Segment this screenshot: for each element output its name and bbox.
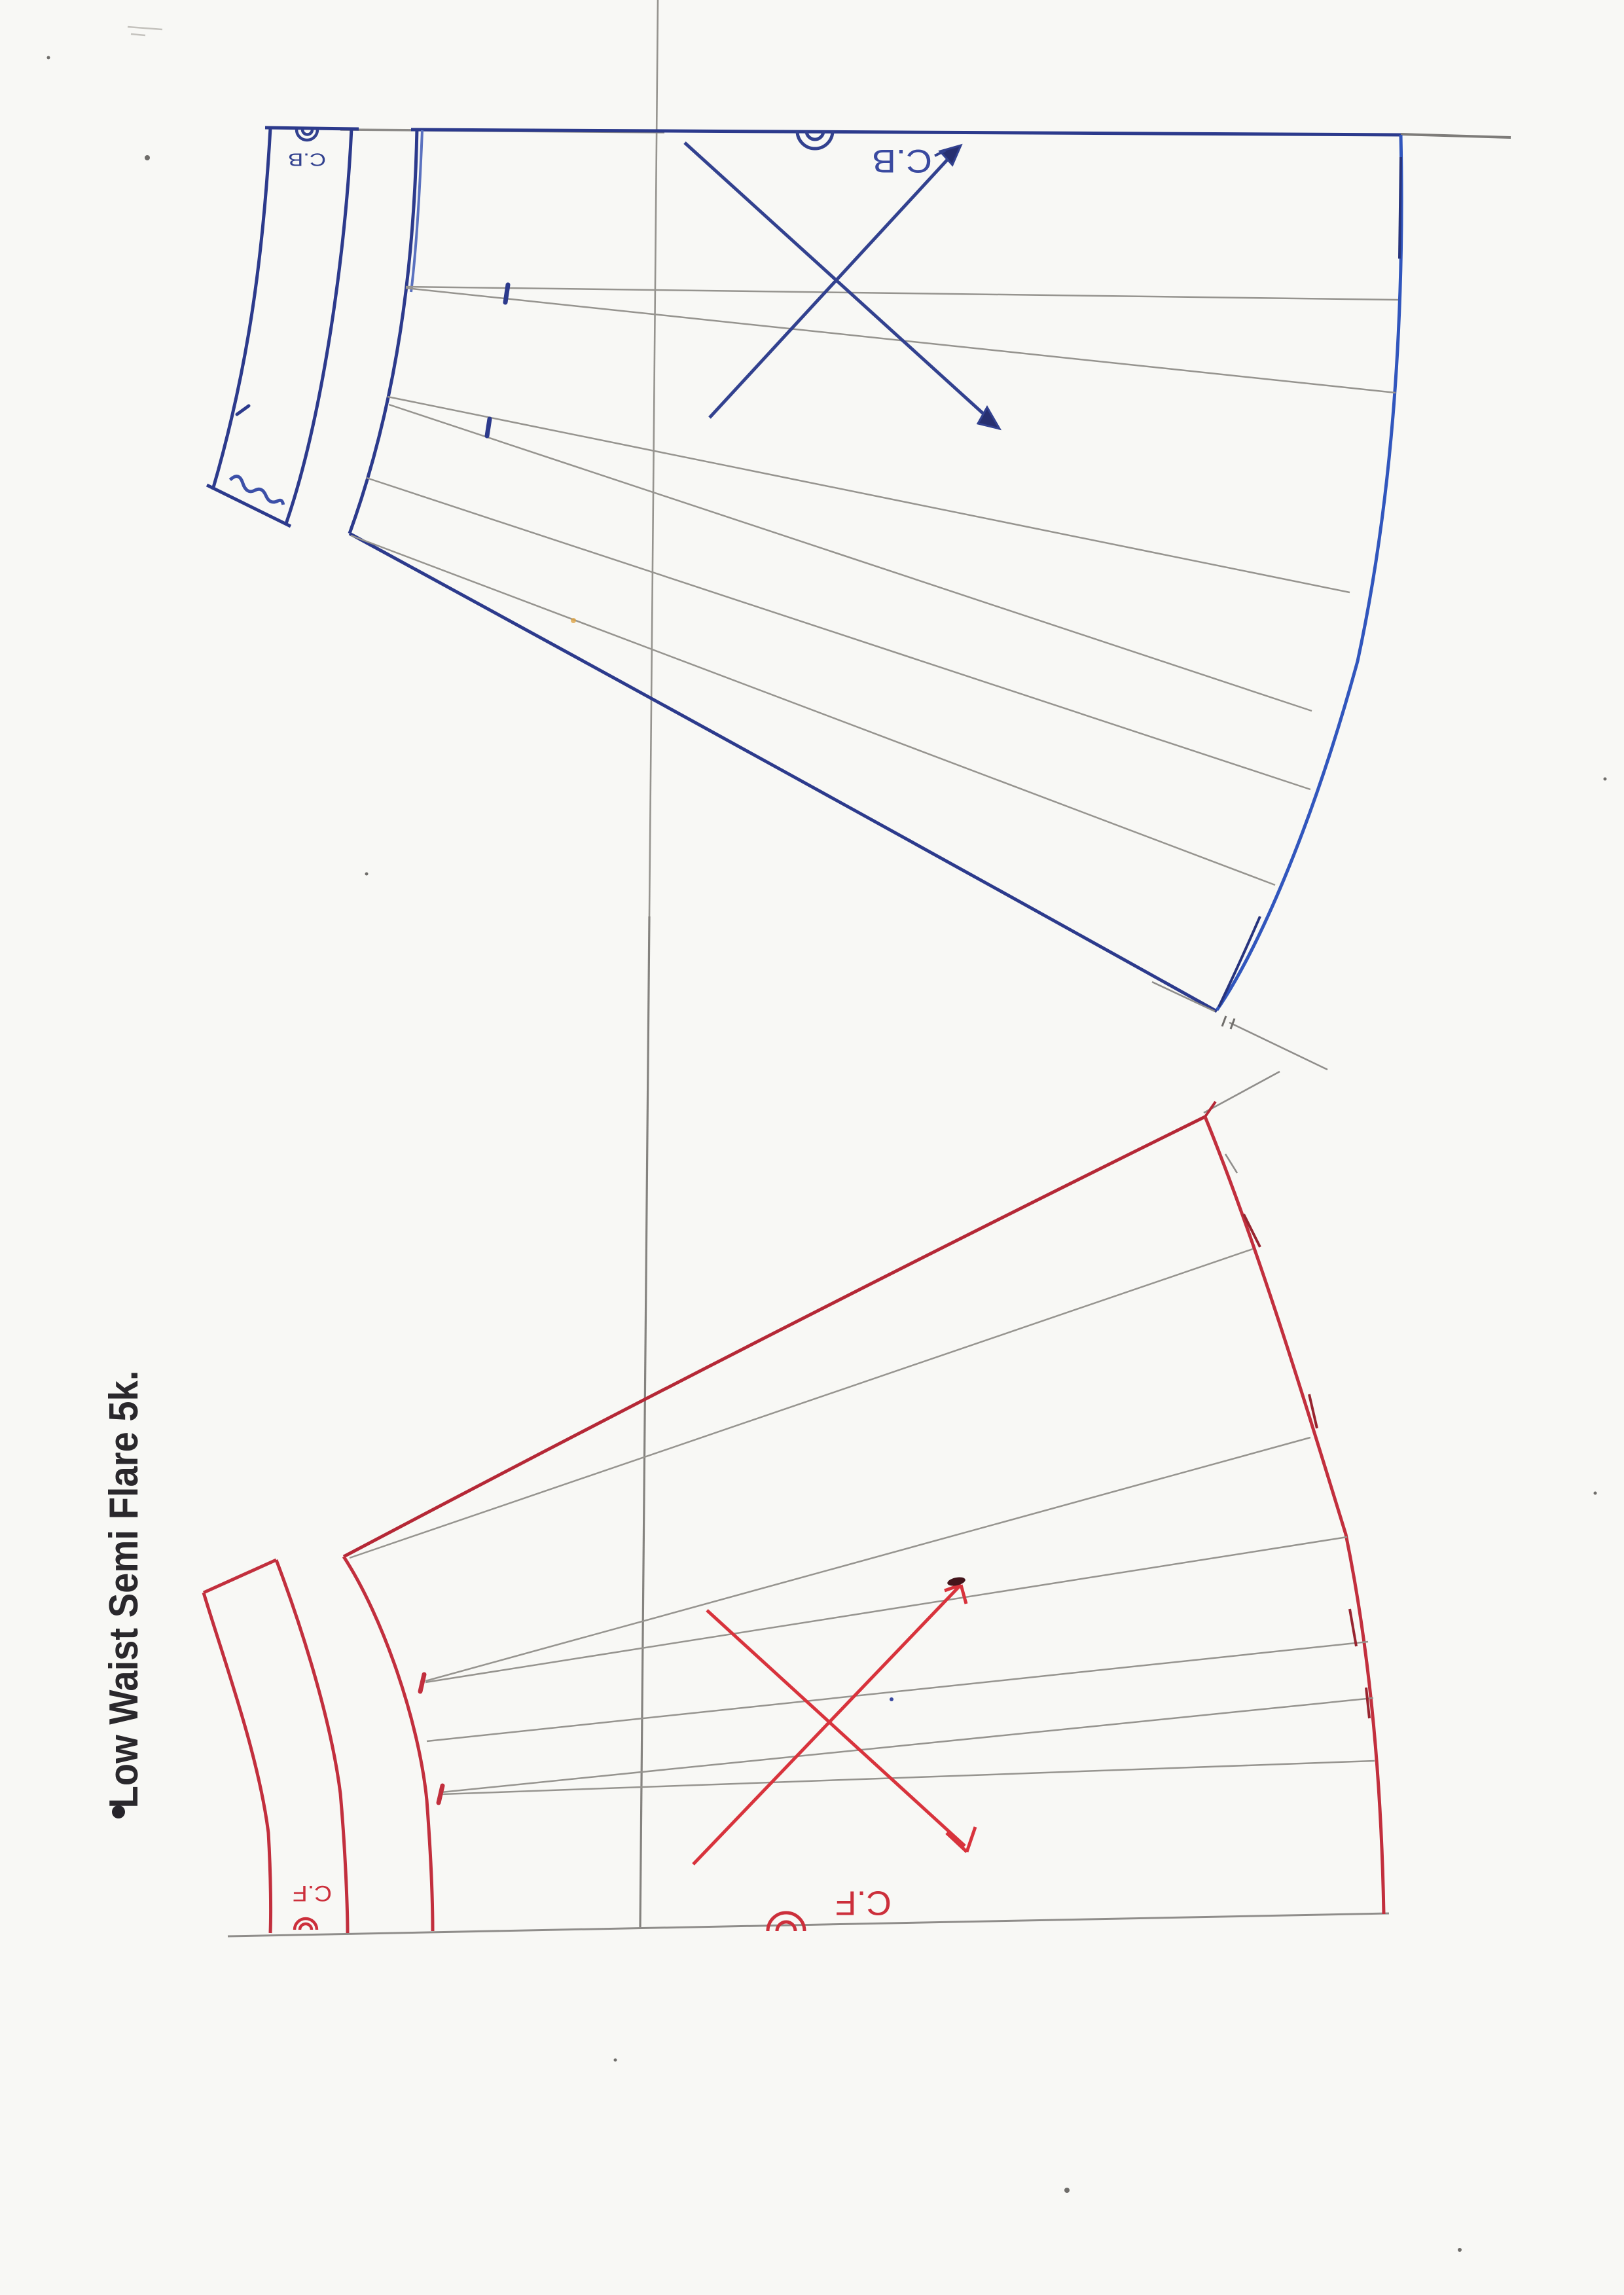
svg-text:C.B: C.B bbox=[872, 143, 932, 179]
svg-text:C.B: C.B bbox=[288, 150, 326, 170]
svg-text:C.F: C.F bbox=[293, 1881, 332, 1906]
svg-text:C.F: C.F bbox=[835, 1883, 892, 1921]
svg-text:Low Waist Semi Flare 5k.: Low Waist Semi Flare 5k. bbox=[101, 1371, 147, 1809]
